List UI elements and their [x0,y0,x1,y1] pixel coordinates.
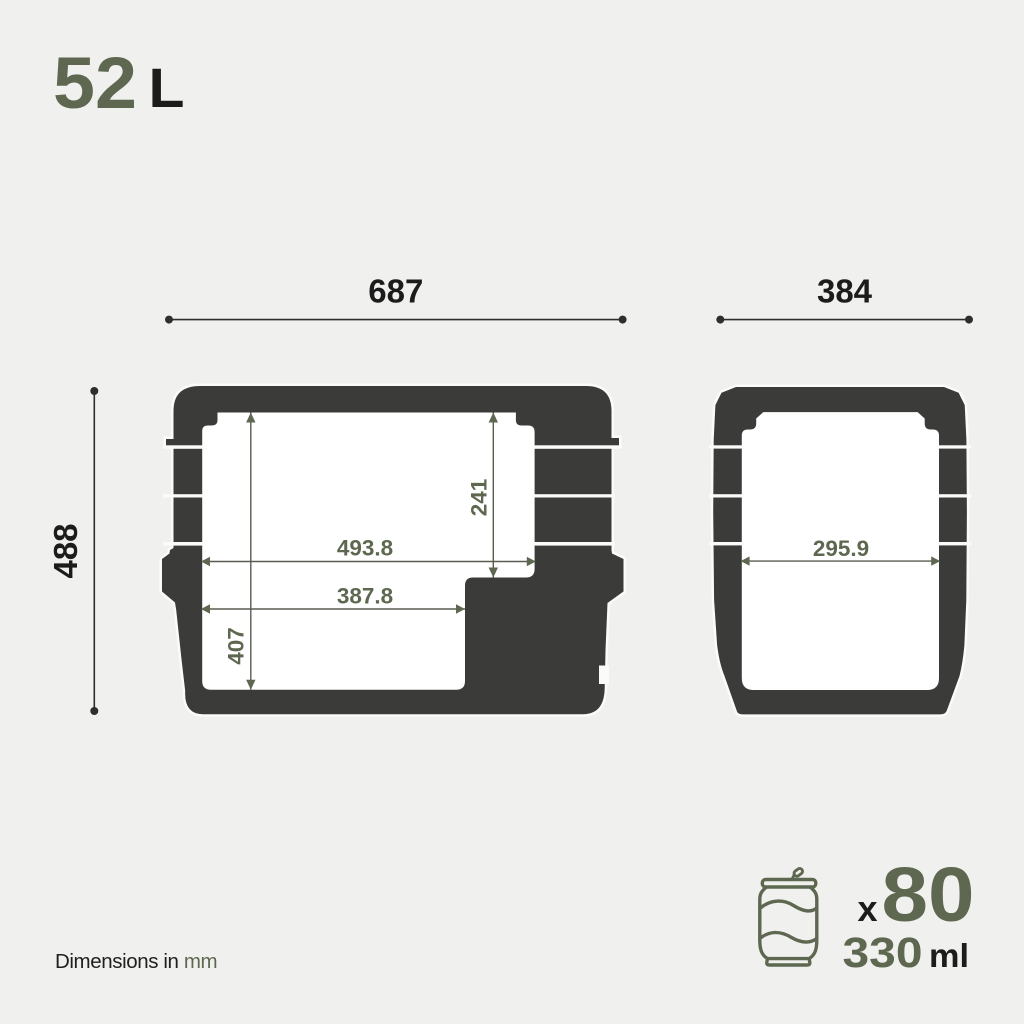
svg-text:x: x [858,888,878,929]
svg-text:687: 687 [368,273,423,310]
svg-text:Dimensions in mm: Dimensions in mm [55,950,217,973]
svg-text:ml: ml [929,938,969,975]
svg-text:384: 384 [817,273,873,310]
svg-text:295.9: 295.9 [813,536,869,561]
svg-text:387.8: 387.8 [337,584,393,609]
svg-text:241: 241 [467,479,492,517]
svg-text:493.8: 493.8 [337,536,393,561]
svg-text:52: 52 [53,41,137,124]
svg-text:L: L [149,57,185,119]
svg-text:330: 330 [843,930,923,977]
svg-text:407: 407 [224,627,249,665]
svg-text:80: 80 [882,852,975,938]
svg-text:488: 488 [47,523,84,578]
